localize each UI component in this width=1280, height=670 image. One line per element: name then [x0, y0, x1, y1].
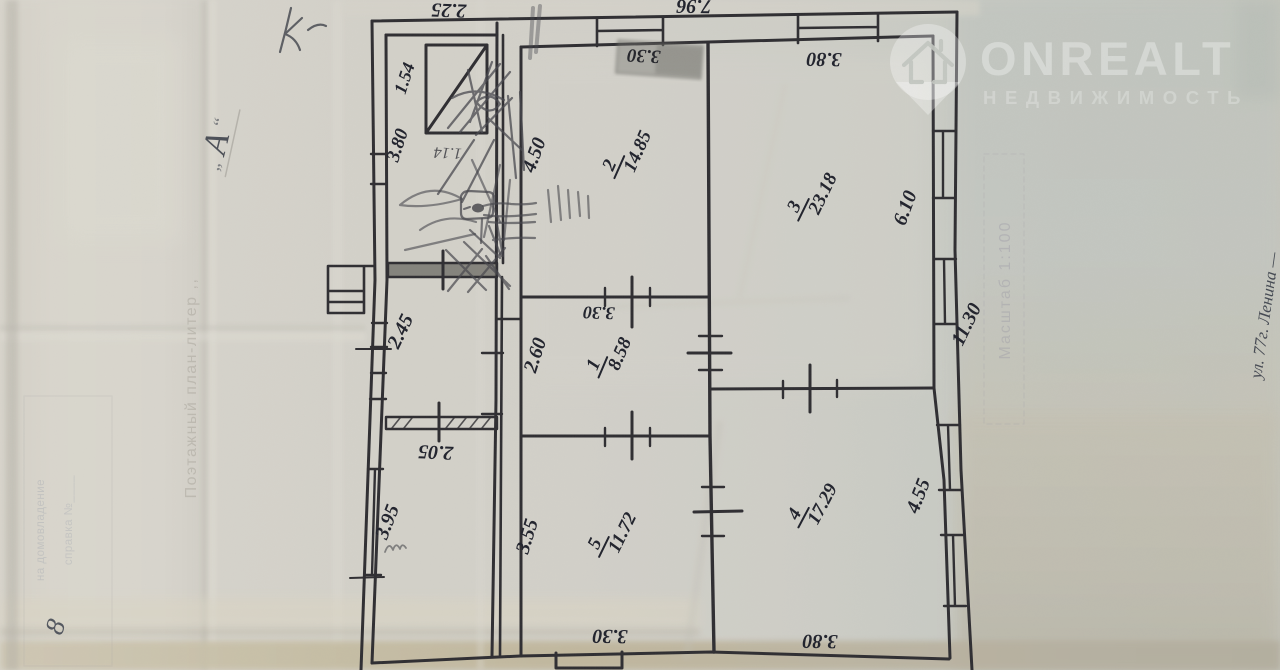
svg-text:2.60: 2.60 — [519, 335, 551, 376]
svg-text:справка №____: справка №____ — [63, 475, 75, 565]
svg-text:„: „ — [203, 160, 225, 173]
svg-text:1.54: 1.54 — [390, 60, 419, 96]
svg-text:3.30: 3.30 — [592, 625, 628, 648]
svg-text:6.10: 6.10 — [889, 188, 922, 228]
svg-text:8.58: 8.58 — [604, 334, 637, 373]
svg-text:ул. 77г. Ленина —: ул. 77г. Ленина — — [1246, 250, 1280, 381]
svg-text:1.14: 1.14 — [433, 143, 462, 161]
svg-text:11.72: 11.72 — [604, 509, 641, 556]
svg-text:Поэтажный план-литер ,,: Поэтажный план-литер ,, — [183, 278, 200, 499]
svg-text:3.80: 3.80 — [806, 48, 842, 71]
svg-text:3.80: 3.80 — [802, 630, 838, 653]
svg-text:14.85: 14.85 — [620, 127, 657, 175]
svg-text:17.29: 17.29 — [803, 480, 842, 528]
svg-text:2.05: 2.05 — [418, 440, 455, 464]
svg-text:ONREALT: ONREALT — [980, 32, 1235, 85]
svg-text:на домовладение: на домовладение — [35, 479, 47, 581]
svg-text:А: А — [196, 129, 237, 160]
svg-text:“: “ — [210, 116, 232, 129]
svg-text:4.55: 4.55 — [901, 476, 934, 517]
svg-text:НЕДВИЖИМОСТЬ: НЕДВИЖИМОСТЬ — [983, 87, 1249, 108]
svg-text:8: 8 — [39, 615, 72, 638]
svg-text:2.25: 2.25 — [431, 0, 468, 22]
svg-text:23.18: 23.18 — [804, 169, 842, 218]
svg-text:3.95: 3.95 — [370, 502, 403, 543]
svg-text:3.55: 3.55 — [511, 516, 543, 557]
svg-text:7.96: 7.96 — [676, 0, 711, 17]
svg-text:3.30: 3.30 — [626, 44, 662, 67]
svg-text:Масштаб 1:100: Масштаб 1:100 — [997, 221, 1014, 360]
svg-text:3.30: 3.30 — [583, 302, 616, 323]
